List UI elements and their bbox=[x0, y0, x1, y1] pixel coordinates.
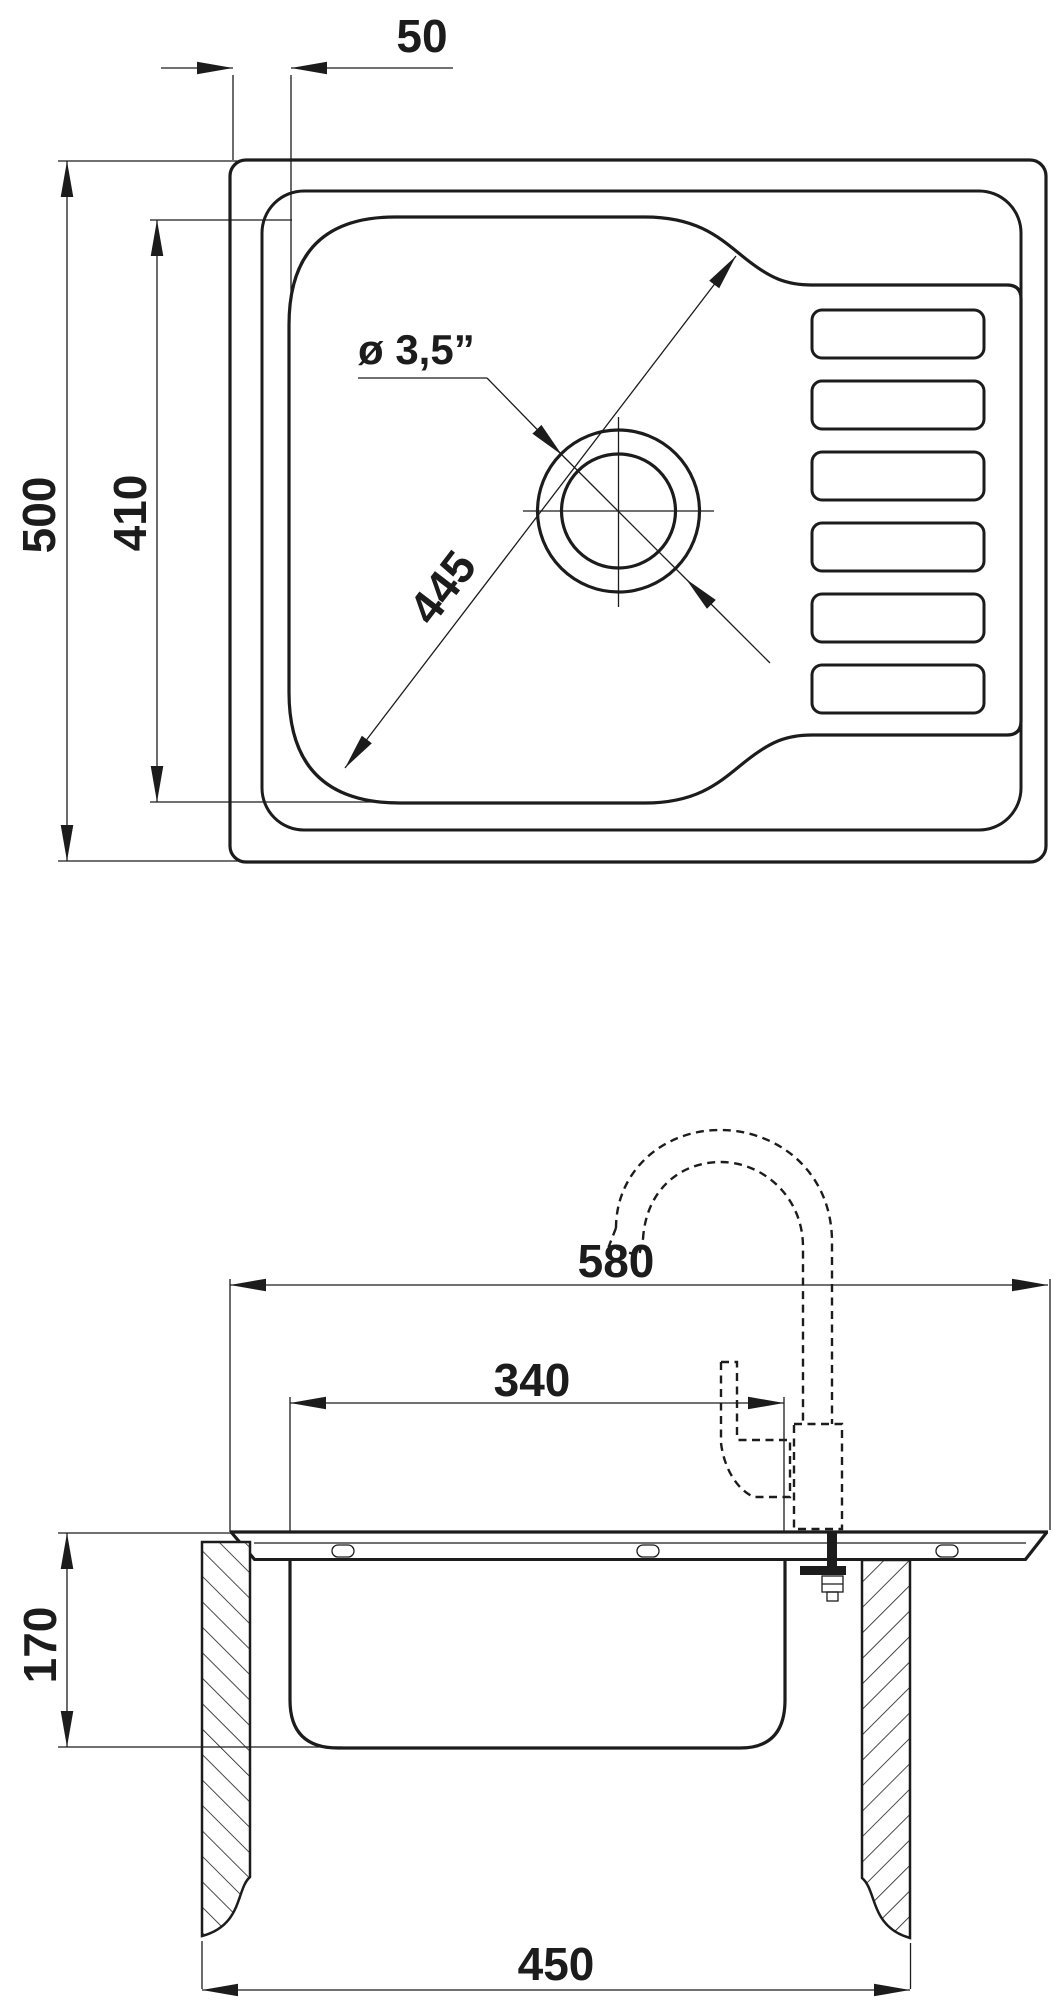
dim-label-drain: ø 3,5” bbox=[358, 326, 475, 373]
dim-bowl-width: 340 bbox=[290, 1354, 784, 1532]
faucet-dashed-outline bbox=[609, 1130, 842, 1529]
dim-label-450: 450 bbox=[518, 1938, 595, 1990]
top-view: 50 500 410 445 ø 3,5” bbox=[13, 10, 1046, 862]
rim-right-lip bbox=[1025, 1532, 1047, 1560]
dim-label-340: 340 bbox=[494, 1354, 571, 1406]
rim-fixing-slot bbox=[332, 1545, 354, 1557]
faucet-handle bbox=[721, 1362, 790, 1497]
bowl-section bbox=[290, 1560, 785, 1748]
drainboard-ribs bbox=[812, 310, 984, 713]
drainboard-rib bbox=[812, 665, 984, 713]
countertop-rim-section bbox=[230, 1532, 1048, 1560]
bowl-outline bbox=[289, 217, 1021, 803]
drainboard-rib bbox=[812, 310, 984, 358]
dim-label-170: 170 bbox=[14, 1607, 66, 1684]
cabinet-panel-left bbox=[202, 1542, 250, 1936]
drainboard-rib bbox=[812, 523, 984, 571]
cabinet-panel-right bbox=[862, 1560, 910, 1938]
faucet-stem bbox=[827, 1533, 837, 1566]
faucet-thread-stub bbox=[827, 1592, 838, 1601]
dim-label-500: 500 bbox=[13, 477, 65, 554]
faucet-base bbox=[794, 1424, 842, 1529]
dim-label-445: 445 bbox=[398, 541, 486, 634]
dim-overall-width: 580 bbox=[230, 1235, 1050, 1532]
dim-rim-offset: 50 bbox=[161, 10, 453, 303]
dim-bowl-depth: 410 bbox=[104, 220, 395, 802]
drainboard-rib bbox=[812, 594, 984, 642]
dim-label-580: 580 bbox=[578, 1235, 655, 1287]
sink-technical-drawing: 50 500 410 445 ø 3,5” bbox=[0, 0, 1054, 2000]
faucet-spout-inner bbox=[643, 1162, 803, 1424]
dim-label-50: 50 bbox=[396, 10, 447, 62]
drainboard-rib bbox=[812, 452, 984, 500]
dim-label-410: 410 bbox=[104, 475, 156, 552]
rim-fixing-slot bbox=[637, 1545, 659, 1557]
drainboard-rib bbox=[812, 381, 984, 429]
drawing-page: 50 500 410 445 ø 3,5” bbox=[0, 0, 1054, 2000]
faucet-flange bbox=[800, 1566, 846, 1575]
side-view: 580 340 170 450 bbox=[14, 1130, 1050, 1990]
rim-fixing-slot bbox=[936, 1545, 958, 1557]
dim-cabinet-width: 450 bbox=[202, 1938, 911, 1990]
